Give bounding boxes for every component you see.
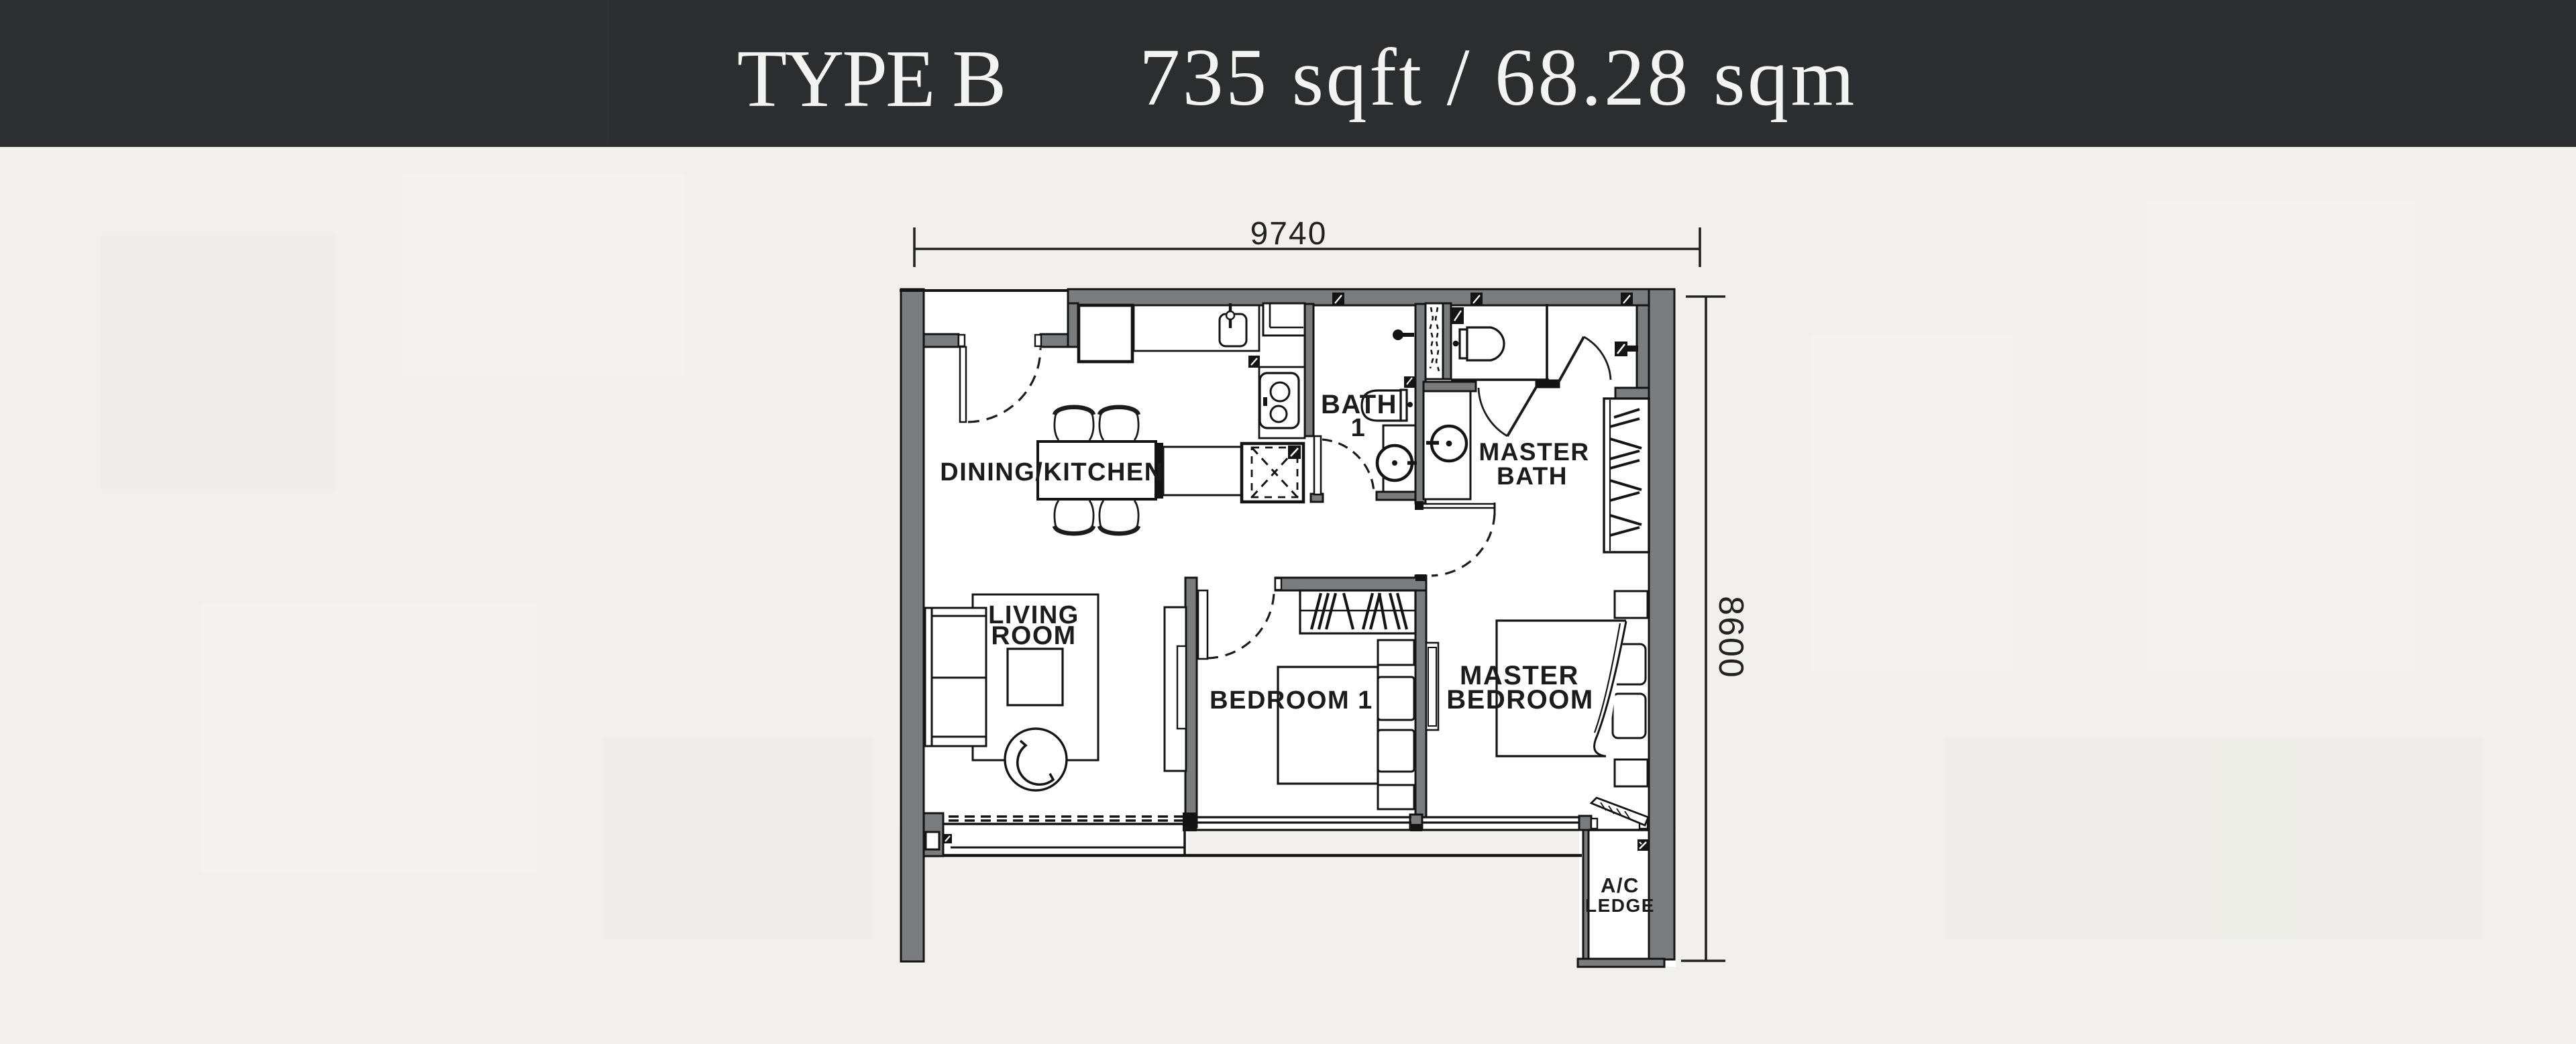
svg-text:BEDROOM 1: BEDROOM 1	[1210, 686, 1373, 715]
svg-text:BATH: BATH	[1497, 462, 1568, 490]
svg-text:735 sqft / 68.28 sqm: 735 sqft / 68.28 sqm	[1139, 32, 1857, 123]
svg-text:TYPE B: TYPE B	[737, 34, 1005, 124]
svg-text:BEDROOM: BEDROOM	[1446, 685, 1593, 715]
svg-text:1: 1	[1351, 414, 1366, 442]
svg-text:8600: 8600	[1711, 596, 1750, 679]
svg-text:A/C: A/C	[1601, 874, 1640, 897]
svg-text:MASTER: MASTER	[1479, 438, 1589, 466]
svg-text:ROOM: ROOM	[991, 621, 1076, 650]
svg-text:LEDGE: LEDGE	[1585, 895, 1655, 916]
svg-text:9740: 9740	[1250, 216, 1328, 252]
svg-text:DINING/KITCHEN: DINING/KITCHEN	[940, 458, 1163, 486]
